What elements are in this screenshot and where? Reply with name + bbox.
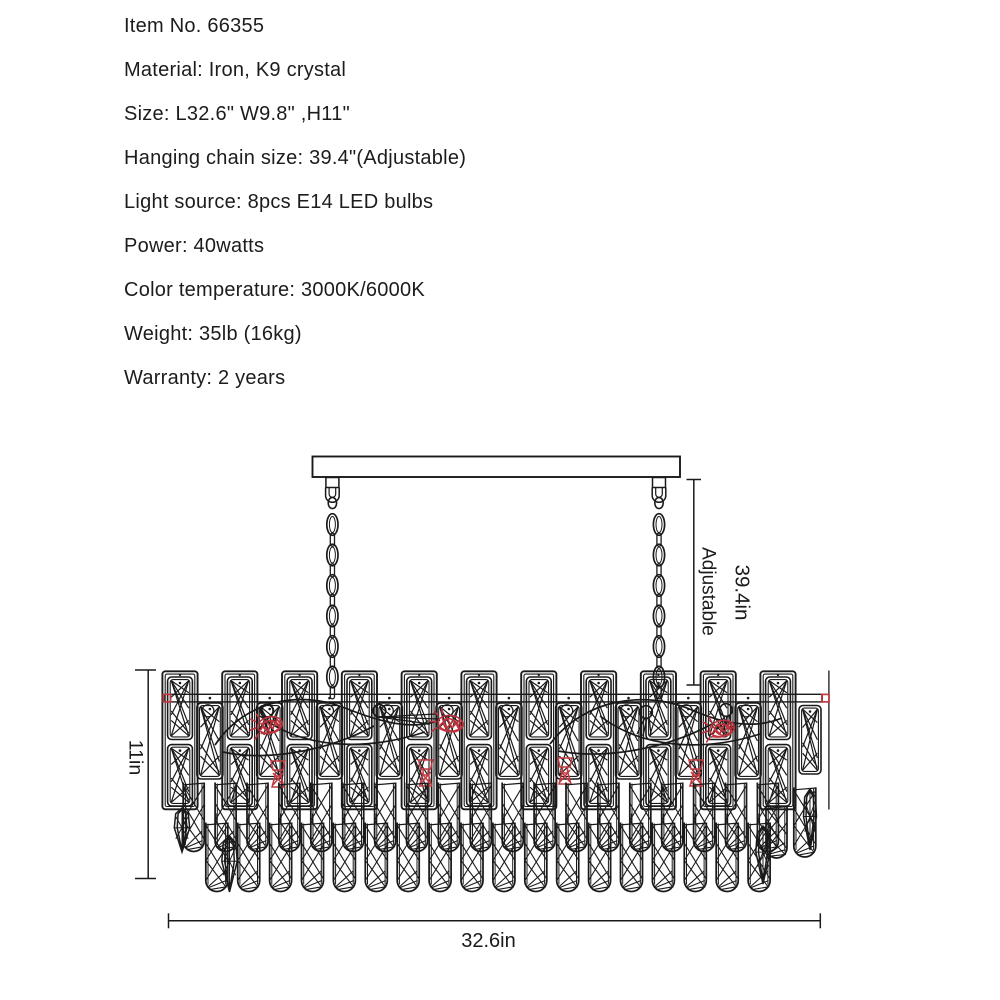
svg-text:39.4in: 39.4in xyxy=(731,565,754,621)
svg-text:Adjustable: Adjustable xyxy=(697,547,718,636)
svg-text:11in: 11in xyxy=(124,740,146,775)
svg-text:32.6in: 32.6in xyxy=(461,930,516,952)
